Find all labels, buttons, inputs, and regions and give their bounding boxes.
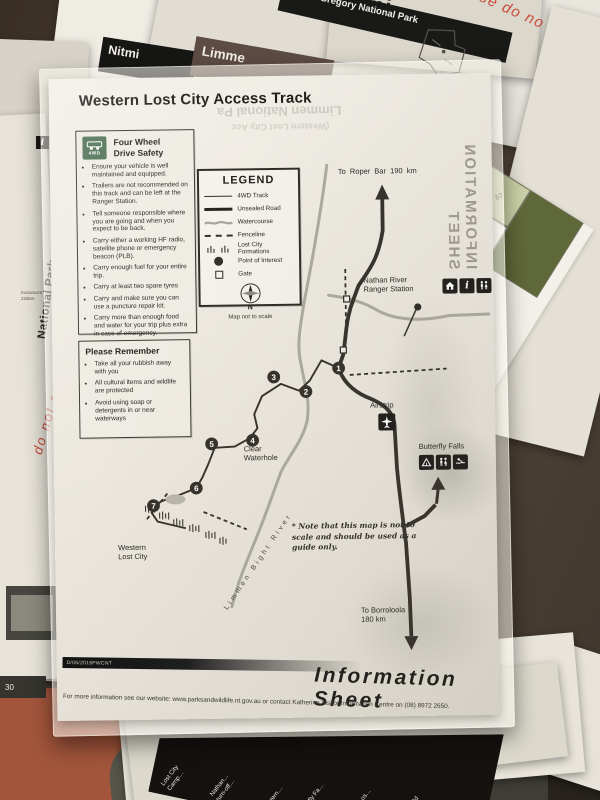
legend-row: Unsealed Road: [204, 202, 293, 216]
label-to-roper-bar: To Roper Bar 190 km: [338, 166, 417, 176]
legend-label: Watercourse: [238, 218, 274, 225]
limmen-banner-text: Limme: [201, 43, 246, 65]
page-number: 30: [5, 683, 14, 692]
four-wheel-drive-safety-box: 4WD Four Wheel Drive Safety Ensure your …: [75, 129, 197, 335]
legend-row: Watercourse: [204, 215, 293, 229]
left-distance-note: Kununurra 225km: [21, 290, 42, 302]
legend-row: 4WD Track: [204, 189, 293, 203]
information-icon: i: [459, 278, 474, 293]
legend-row: Lost City Formations: [205, 241, 294, 255]
legend-row: Gate: [205, 267, 294, 281]
toilets-icon: [436, 455, 451, 470]
poi-5: 5: [209, 440, 214, 449]
point-of-interest-symbol: [214, 257, 223, 266]
map-scale-note: * Note that this map is not to scale and…: [292, 520, 422, 553]
toilets-icon: [476, 278, 491, 293]
page-title: Western Lost City Access Track: [79, 89, 312, 109]
safety-item: Trailers are not recommended on this tra…: [92, 182, 188, 207]
legend-box: LEGEND 4WD Track Unsealed Road Watercour…: [197, 168, 302, 307]
fenceline-symbol: [205, 234, 233, 236]
swimming-icon: [453, 454, 468, 469]
left-gray-content-block: [11, 595, 53, 631]
remember-box-title: Please Remember: [85, 345, 183, 356]
safety-item: Carry at least two spare tyres: [93, 283, 189, 292]
left-page-number-tab: 30: [0, 676, 46, 698]
bottom-tab-label: Lost City Camp…: [160, 731, 213, 793]
bottom-tab-label: Nathan… turn-off…: [209, 741, 262, 800]
poi-1: 1: [336, 364, 341, 373]
bottom-tab-label: Nathan River Rd Rd T-junction: [387, 776, 443, 800]
remember-item: Avoid using soap or detergents in or nea…: [95, 398, 184, 423]
ranger-station-facility-icons: i: [442, 278, 491, 294]
safety-item: Tell someone responsible where you are g…: [92, 209, 188, 234]
main-information-sheet: Limmen National Pa (Western Lost City Ac…: [49, 73, 500, 721]
poi-2: 2: [304, 388, 309, 397]
legend-label: 4WD Track: [237, 192, 268, 199]
camping-icon: [419, 455, 434, 470]
ranger-station-icon: [442, 278, 457, 293]
legend-label: Unsealed Road: [237, 205, 281, 213]
safety-item: Carry and make sure you can use a punctu…: [94, 294, 190, 311]
butterfly-falls-facility-icons: [419, 454, 468, 470]
bottom-tab-label: Butterfly Fa… turn-off: [297, 760, 350, 800]
photo-of-information-sheets: rini barra / Gregory National Park ase d…: [0, 0, 600, 800]
arrow-to-borroloola: [404, 636, 418, 650]
watercourse-line-symbol: [205, 218, 233, 226]
label-to-borroloola: To Borroloola 180 km: [361, 605, 405, 624]
compass-rose-icon: [238, 282, 262, 306]
lost-city-formations-symbol: [205, 243, 233, 253]
bottom-tab-label: Western…: [261, 756, 308, 800]
legend-label: Gate: [238, 270, 252, 277]
safety-item: Ensure your vehicle is well maintained a…: [92, 162, 188, 179]
please-remember-box: Please Remember Take all your rubbish aw…: [78, 339, 191, 439]
legend-label: Point of Interest: [238, 257, 282, 265]
poi-3: 3: [271, 373, 276, 382]
legend-title: LEGEND: [204, 174, 293, 187]
legend-label: Fenceline: [238, 231, 265, 238]
legend-label: Lost City Formations: [238, 240, 294, 255]
4wd-vehicle-icon: 4WD: [82, 136, 106, 159]
label-clear-waterhole: Clear Waterhole: [244, 444, 278, 463]
label-ranger-station: Nathan River Ranger Station: [363, 275, 413, 294]
safety-item: Carry enough fuel for your entire trip.: [93, 263, 189, 280]
gate-symbol-legend: [215, 270, 223, 278]
airstrip-icon: [378, 413, 395, 430]
nitmiluk-banner-text: Nitmi: [107, 43, 140, 62]
safety-item: Carry either a working HF radio, satelli…: [93, 236, 189, 261]
remember-item: Take all your rubbish away with you: [94, 359, 183, 376]
poi-7: 7: [151, 502, 156, 511]
label-airstrip: Airstrip: [370, 400, 393, 410]
remember-list: Take all your rubbish away with you All …: [85, 359, 184, 423]
legend-row: Point of Interest: [205, 254, 294, 268]
safety-list: Ensure your vehicle is well maintained a…: [83, 162, 190, 338]
unsealed-road-line-symbol: [204, 208, 232, 211]
ghost-title-line2: (Western Lost City Acc: [231, 121, 329, 132]
label-western-lost-city: Western Lost City: [118, 543, 147, 562]
safety-box-title: Four Wheel Drive Safety: [113, 137, 163, 158]
legend-scale-note: Map not to scale: [206, 314, 295, 321]
label-butterfly-falls: Butterfly Falls: [419, 441, 465, 451]
arrow-to-roper-bar: [375, 184, 389, 199]
compass-north-letter: N: [206, 304, 295, 312]
arrow-to-butterfly-falls: [431, 477, 445, 504]
poi-6: 6: [194, 484, 199, 493]
bottom-tab-label: Southern Los… turn-off: [341, 769, 394, 800]
safety-item: Carry more than enough food and water fo…: [94, 313, 190, 338]
4wd-track-line-symbol: [204, 196, 232, 197]
document-code: D/06/2019PWCNT: [62, 659, 112, 666]
4wd-icon-label: 4WD: [89, 150, 101, 155]
remember-item: All cultural items and wildlife are prot…: [95, 379, 184, 396]
airplane-icon: [380, 415, 393, 428]
